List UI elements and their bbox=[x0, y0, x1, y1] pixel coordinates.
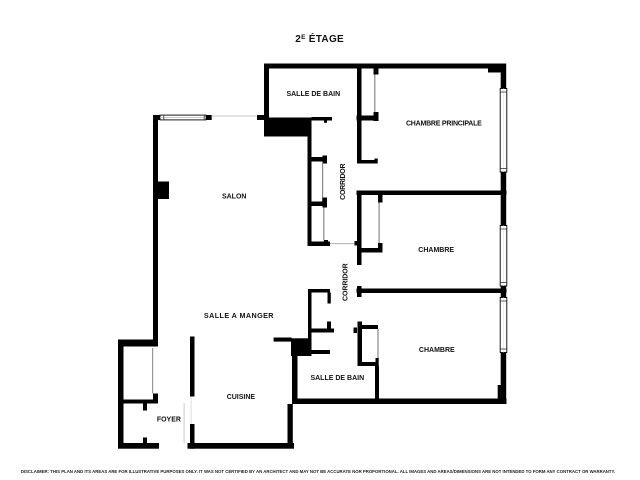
svg-text:SALLE A MANGER: SALLE A MANGER bbox=[204, 311, 274, 320]
svg-text:SALLE DE BAIN: SALLE DE BAIN bbox=[310, 375, 364, 382]
svg-text:CORRIDOR: CORRIDOR bbox=[343, 263, 350, 301]
svg-text:CHAMBRE PRINCIPALE: CHAMBRE PRINCIPALE bbox=[406, 121, 482, 128]
svg-text:CHAMBRE: CHAMBRE bbox=[418, 247, 454, 254]
svg-text:CUISINE: CUISINE bbox=[227, 394, 256, 401]
svg-text:SALLE DE BAIN: SALLE DE BAIN bbox=[286, 91, 340, 98]
svg-text:CHAMBRE: CHAMBRE bbox=[419, 347, 455, 354]
svg-text:SALON: SALON bbox=[222, 194, 247, 201]
svg-text:DISCLAIMER: THIS PLAN AND ITS: DISCLAIMER: THIS PLAN AND ITS AREAS ARE … bbox=[21, 469, 615, 474]
svg-text:CORRIDOR: CORRIDOR bbox=[340, 164, 347, 200]
svg-text:FOYER: FOYER bbox=[157, 417, 181, 424]
